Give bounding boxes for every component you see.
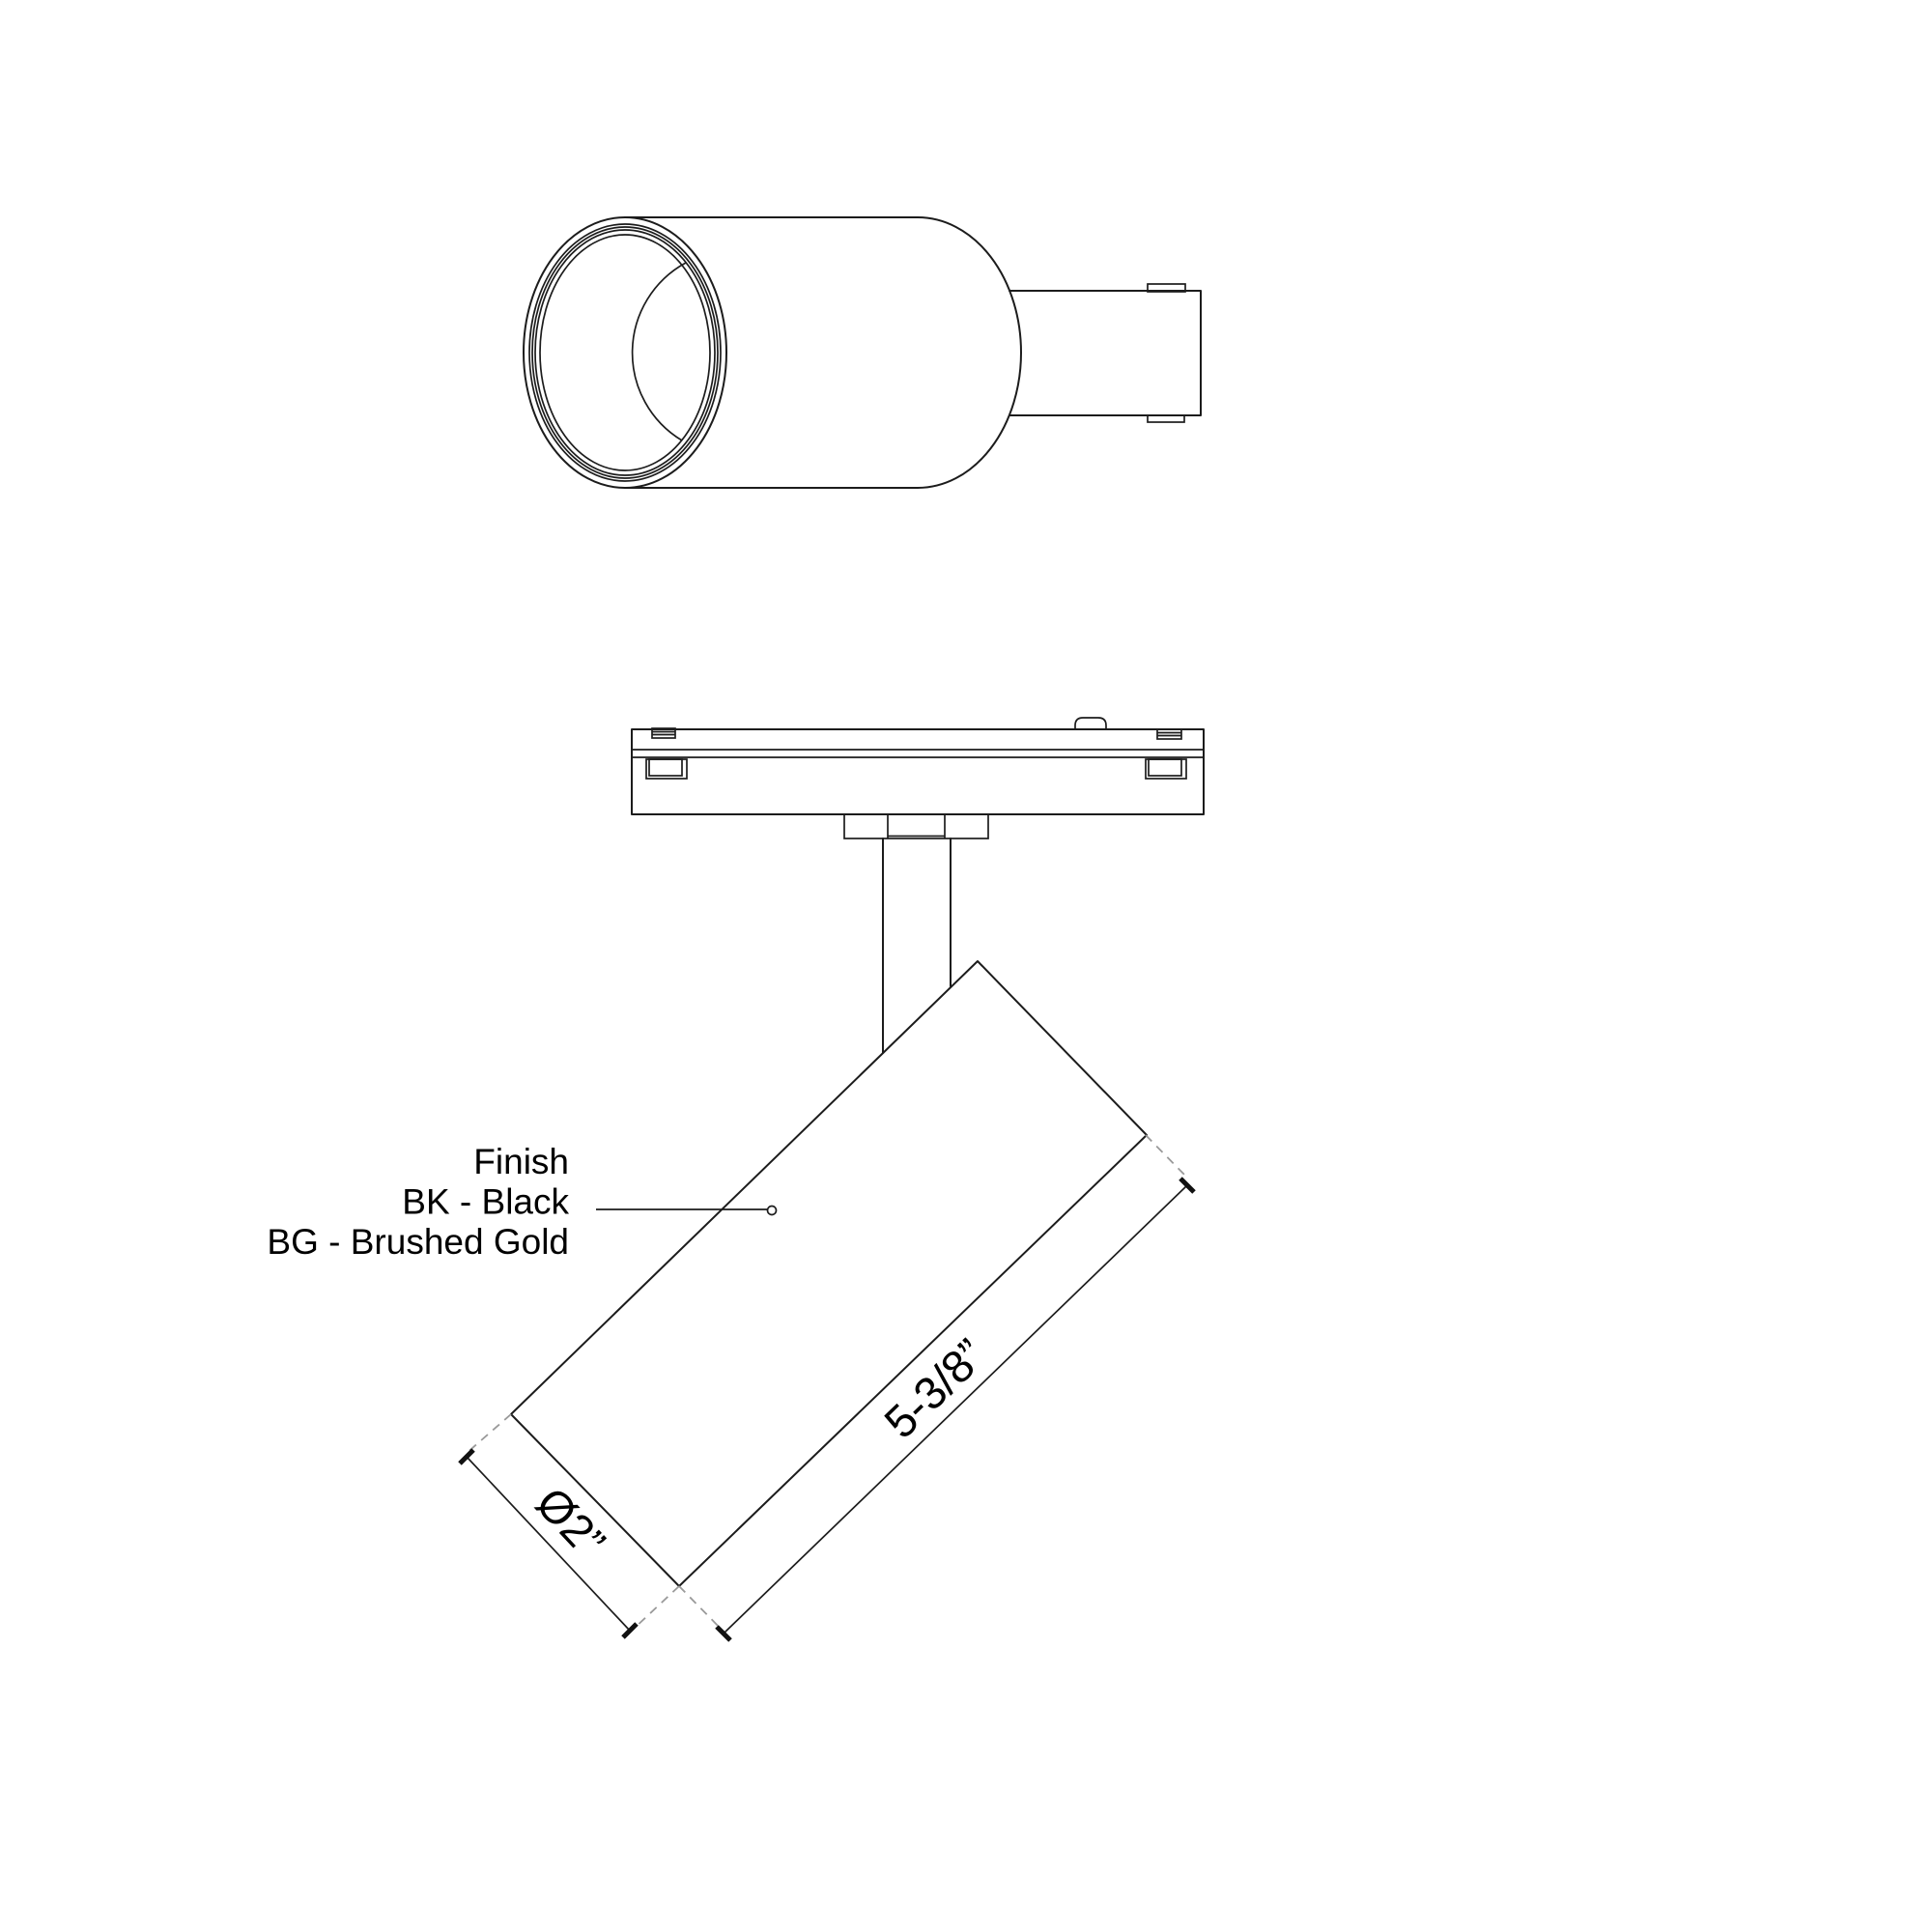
rear-connector-block	[1009, 291, 1201, 415]
dimension-length: 5-3/8”	[679, 1135, 1194, 1640]
rear-connector-tab-bottom	[1148, 415, 1184, 422]
latch-bump	[1075, 718, 1106, 729]
leader-endpoint-marker	[768, 1207, 777, 1215]
finish-title: Finish	[473, 1142, 569, 1181]
diameter-dimension-text: Ø2”	[526, 1477, 615, 1567]
dimension-diameter: Ø2”	[460, 1414, 679, 1637]
length-dimension-line	[724, 1185, 1187, 1634]
diameter-dimension-line	[467, 1457, 630, 1631]
cylinder-body-outline	[625, 217, 1021, 488]
track-light-technical-drawing: Finish BK - Black BG - Brushed Gold 5-3/…	[0, 0, 1932, 1932]
hanging-clip-right-inner	[1149, 759, 1181, 776]
extension-line-rear-right	[1146, 1135, 1187, 1178]
technical-drawing-page: Finish BK - Black BG - Brushed Gold 5-3/…	[0, 0, 1932, 1932]
bezel-ring-2	[529, 224, 721, 481]
top-view-cylinder-head	[524, 217, 1201, 488]
finish-option-brushed-gold: BG - Brushed Gold	[267, 1222, 569, 1262]
track-adapter-bar	[632, 729, 1204, 814]
cylinder-head-angled	[511, 961, 1147, 1586]
extension-line-front-right-b	[633, 1586, 679, 1630]
bezel-ring-4	[535, 230, 715, 475]
lens-arc	[633, 263, 686, 440]
side-view-track-fixture	[511, 718, 1204, 1586]
extension-line-front-right-a	[679, 1586, 724, 1632]
bezel-ring-3	[532, 227, 718, 478]
finish-note: Finish BK - Black BG - Brushed Gold	[267, 1142, 776, 1262]
contact-tab-right	[1157, 729, 1181, 739]
bezel-ring-outer	[524, 217, 726, 488]
stem-connector-block	[844, 814, 988, 838]
finish-option-black: BK - Black	[402, 1182, 569, 1222]
aperture-ring-inner	[540, 235, 710, 470]
hanging-clip-left-inner	[649, 759, 682, 776]
